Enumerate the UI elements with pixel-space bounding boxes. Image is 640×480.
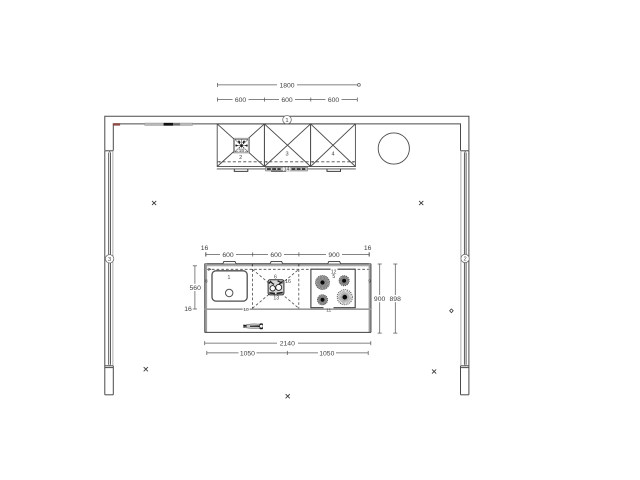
svg-text:1050: 1050 [240, 350, 255, 357]
svg-text:16: 16 [364, 245, 372, 252]
svg-text:3: 3 [285, 152, 288, 158]
svg-text:16: 16 [184, 306, 192, 313]
svg-text:15: 15 [239, 148, 245, 154]
svg-text:2: 2 [463, 257, 466, 263]
svg-text:600: 600 [222, 252, 234, 259]
svg-text:600: 600 [235, 97, 247, 104]
svg-text:600: 600 [270, 252, 282, 259]
svg-text:6: 6 [274, 274, 277, 280]
svg-text:11: 11 [326, 308, 331, 314]
svg-text:x: x [352, 160, 354, 164]
svg-text:5: 5 [332, 274, 335, 280]
svg-text:13: 13 [273, 296, 279, 302]
svg-text:14: 14 [284, 167, 290, 173]
svg-text:900: 900 [374, 296, 386, 303]
svg-text:1050: 1050 [319, 350, 334, 357]
svg-text:1: 1 [228, 275, 231, 281]
svg-text:16: 16 [201, 245, 209, 252]
svg-text:1800: 1800 [279, 82, 294, 89]
svg-text:x: x [266, 160, 268, 164]
svg-text:600: 600 [281, 97, 293, 104]
svg-text:560: 560 [190, 285, 202, 292]
svg-text:16: 16 [285, 279, 291, 285]
svg-text:2140: 2140 [280, 341, 295, 348]
svg-text:4: 4 [331, 152, 334, 158]
svg-text:1: 1 [285, 118, 288, 124]
svg-text:900: 900 [328, 252, 340, 259]
svg-text:x: x [219, 160, 221, 164]
svg-text:600: 600 [328, 97, 340, 104]
svg-text:2: 2 [239, 155, 242, 161]
svg-text:898: 898 [390, 296, 402, 303]
svg-text:3: 3 [108, 257, 111, 263]
svg-text:10: 10 [243, 307, 249, 313]
svg-text:x: x [312, 160, 314, 164]
